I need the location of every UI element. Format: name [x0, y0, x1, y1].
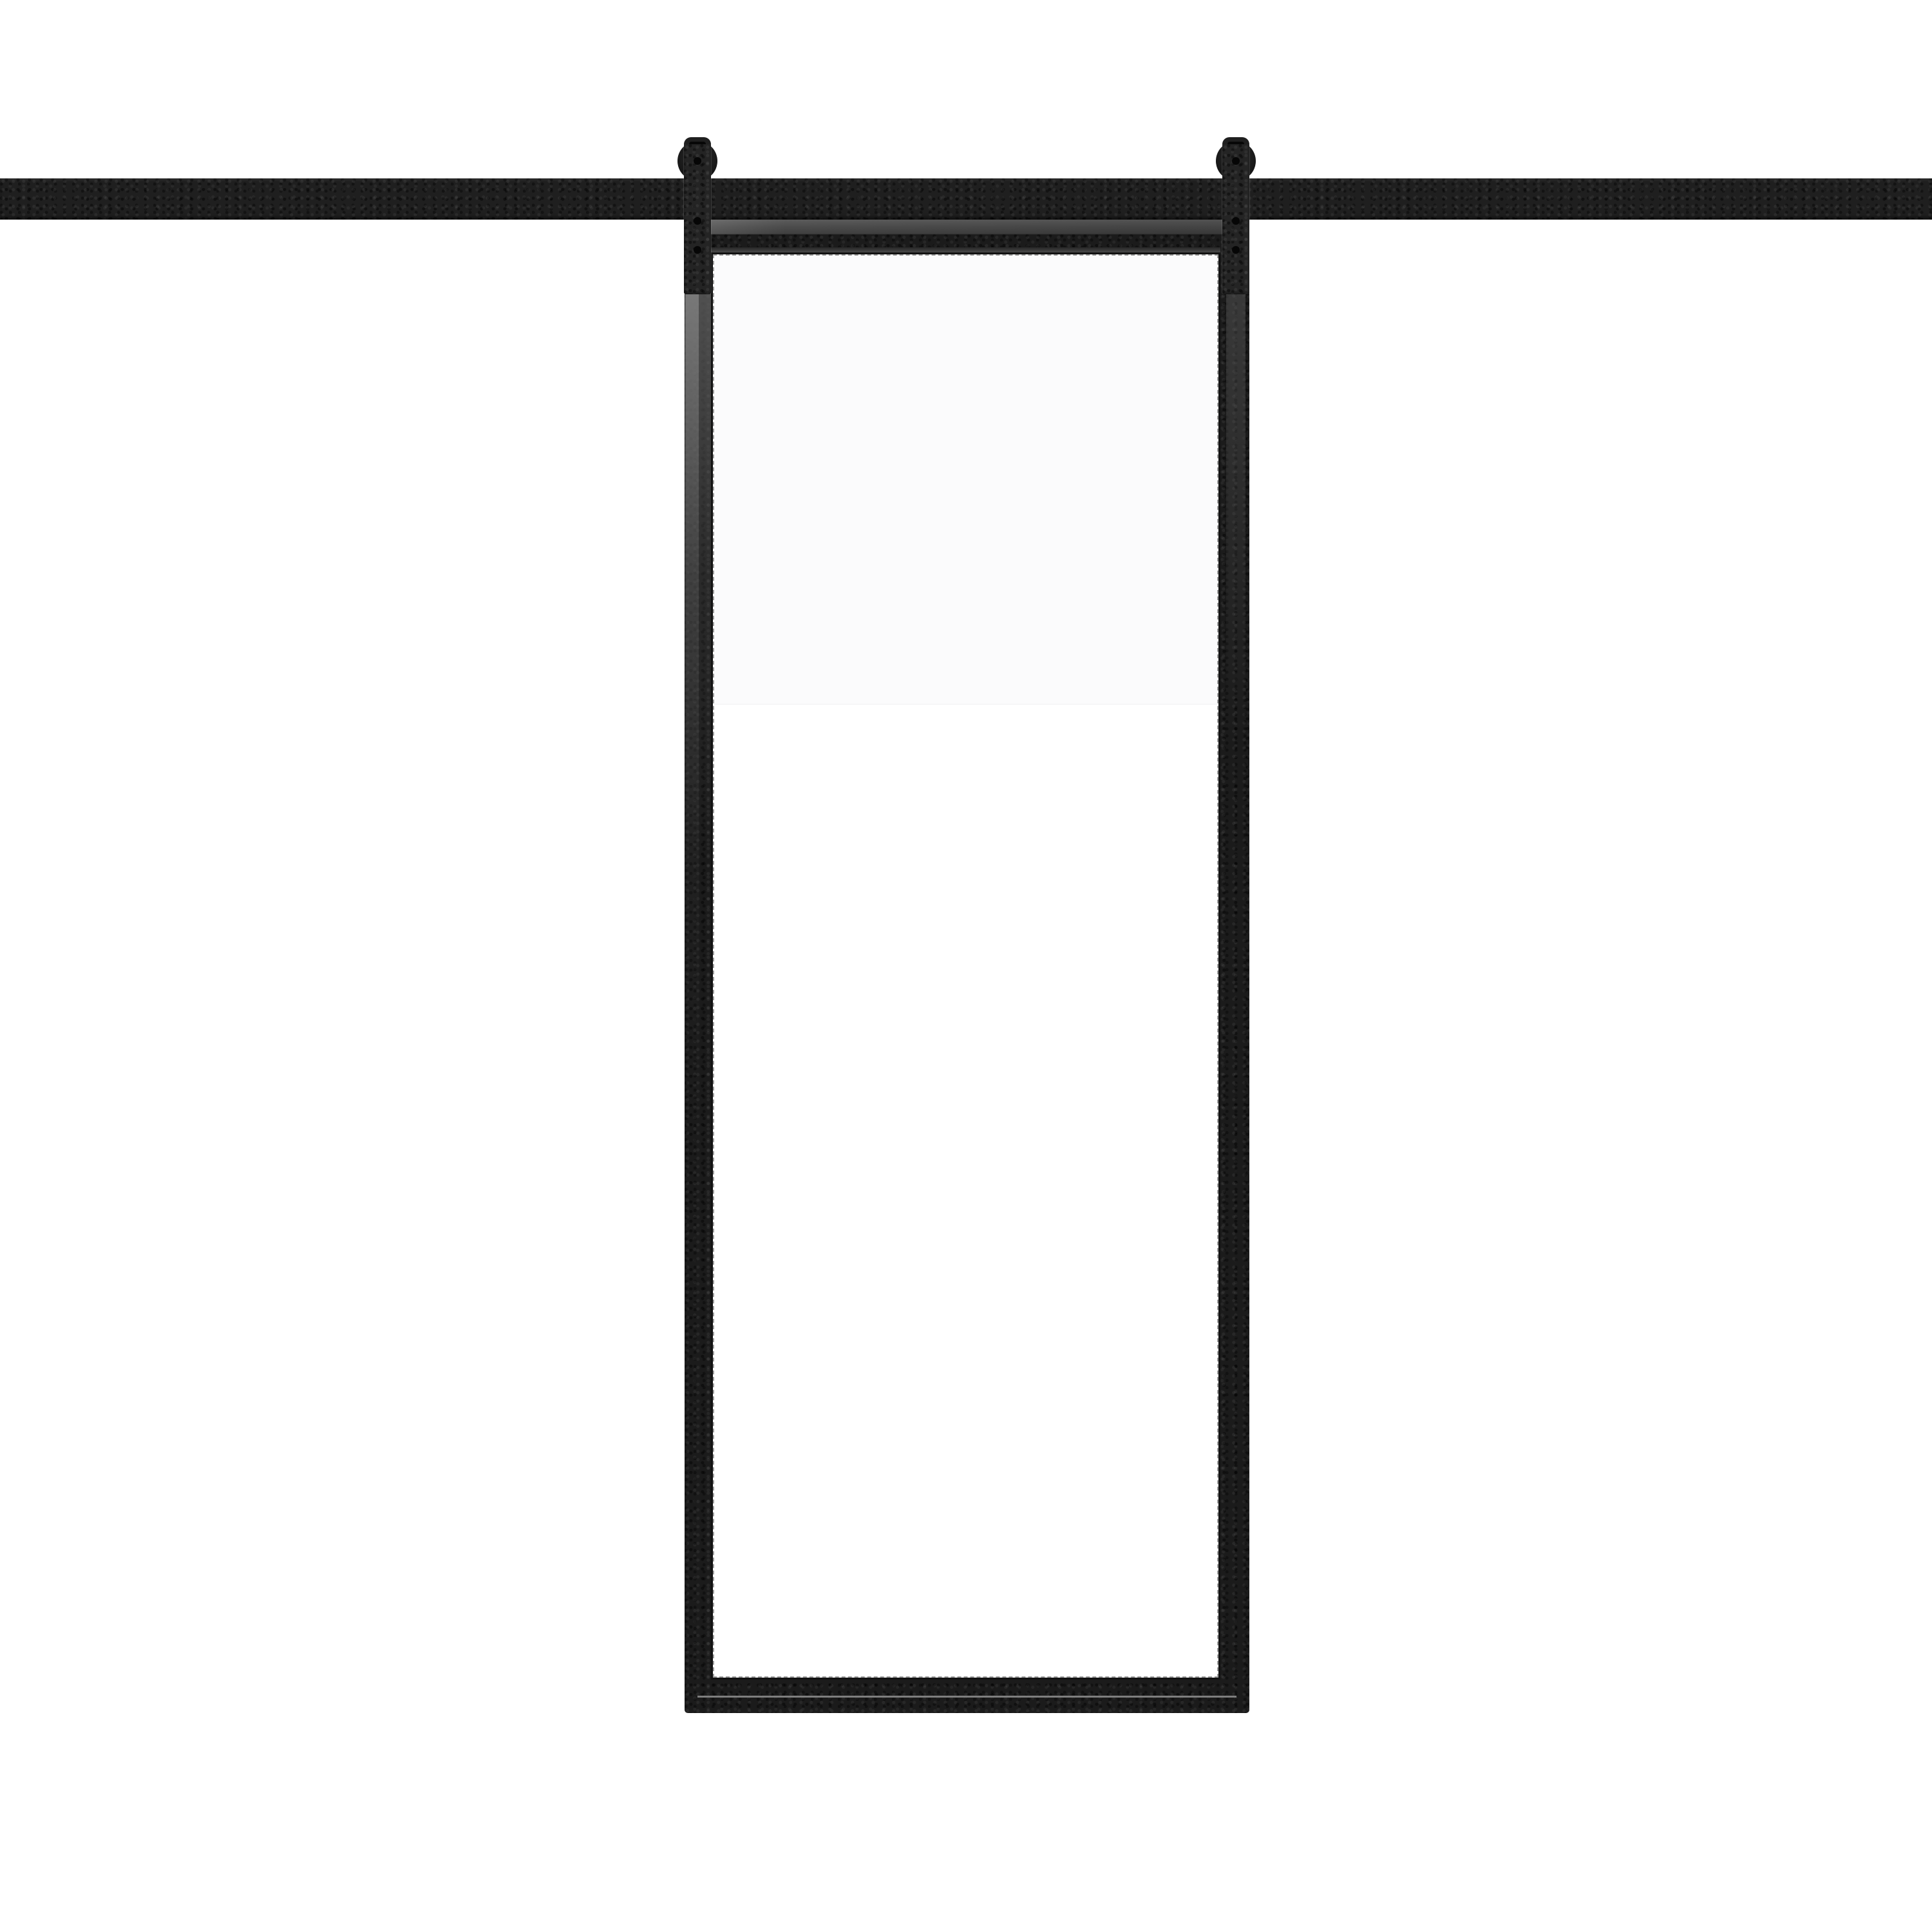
- strap-bolt-icon: [694, 246, 701, 254]
- glass-reflection-tint: [714, 256, 1217, 705]
- strap-bolt-icon: [694, 217, 701, 225]
- left-stile-highlight: [685, 282, 699, 1119]
- product-image-canvas: [0, 0, 1932, 1932]
- barn-door: [685, 218, 1249, 1713]
- track-rail: [0, 178, 1932, 220]
- left-stile-inner-shade: [699, 282, 711, 862]
- strap-bolt-icon: [1232, 217, 1240, 225]
- axle-bolt-icon: [1232, 157, 1240, 165]
- left-roller-hanger: [670, 135, 725, 294]
- strap-bolt-icon: [1232, 246, 1240, 254]
- door-top-edge: [685, 218, 1249, 236]
- right-stile-highlight: [1226, 282, 1245, 733]
- bottom-rail-seam-line: [697, 1696, 1236, 1698]
- glass-panel: [711, 252, 1220, 1680]
- glass-pane-edge: [713, 254, 1218, 1678]
- right-roller-hanger: [1208, 135, 1264, 294]
- axle-bolt-icon: [694, 157, 701, 165]
